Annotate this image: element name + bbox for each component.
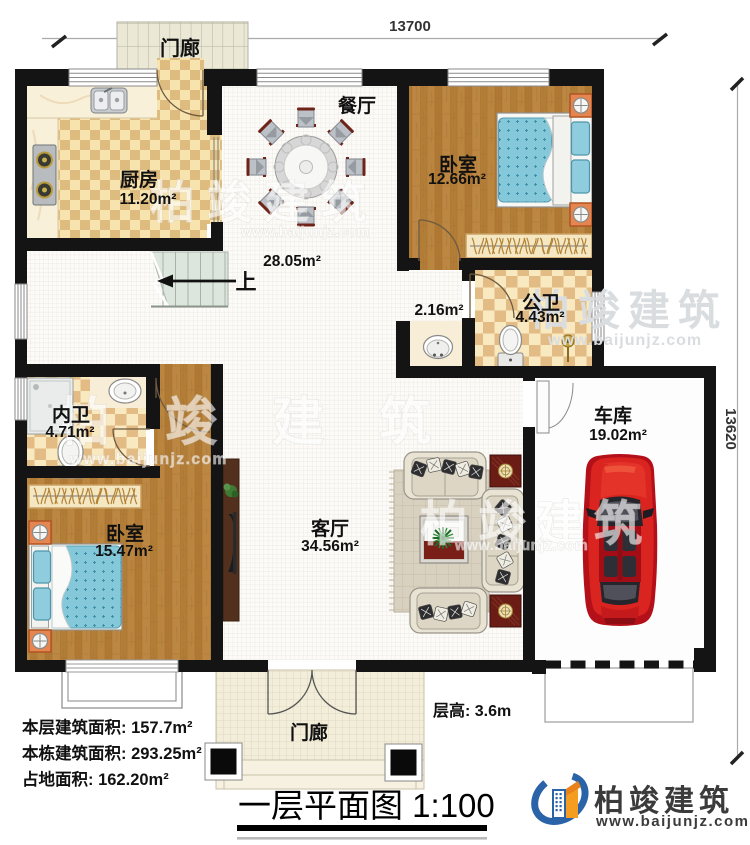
svg-text:4.43m²: 4.43m² — [515, 309, 564, 326]
svg-text:占地面积: 162.20m²: 占地面积: 162.20m² — [22, 769, 169, 789]
svg-text:门廊: 门廊 — [290, 721, 328, 744]
svg-text:餐厅: 餐厅 — [338, 94, 376, 117]
svg-text:卧室: 卧室 — [106, 522, 144, 545]
svg-text:本栋建筑面积: 293.25m²: 本栋建筑面积: 293.25m² — [22, 743, 202, 763]
svg-text:4.71m²: 4.71m² — [45, 424, 94, 441]
svg-text:www.baijunjz.com: www.baijunjz.com — [595, 813, 749, 830]
svg-text:34.56m²: 34.56m² — [301, 538, 359, 555]
svg-text:内卫: 内卫 — [52, 403, 90, 426]
svg-text:层高: 3.6m: 层高: 3.6m — [433, 701, 511, 720]
svg-text:厨房: 厨房 — [120, 168, 158, 191]
svg-text:2.16m²: 2.16m² — [414, 302, 463, 319]
svg-text:www.baijunjz.com: www.baijunjz.com — [547, 332, 702, 349]
svg-text:19.02m²: 19.02m² — [589, 427, 647, 444]
svg-text:本层建筑面积: 157.7m²: 本层建筑面积: 157.7m² — [22, 717, 193, 737]
svg-text:11.20m²: 11.20m² — [120, 191, 177, 208]
svg-text:www.baijunjz.com: www.baijunjz.com — [454, 538, 588, 554]
svg-text:13620: 13620 — [722, 408, 739, 450]
svg-text:13700: 13700 — [389, 18, 431, 35]
svg-text:上: 上 — [236, 271, 257, 294]
svg-text:www.baijunjz.com: www.baijunjz.com — [69, 451, 228, 468]
svg-text:客厅: 客厅 — [311, 517, 349, 540]
svg-text:车库: 车库 — [594, 404, 632, 427]
svg-text:15.47m²: 15.47m² — [95, 543, 153, 560]
svg-text:门廊: 门廊 — [160, 36, 200, 60]
svg-text:www.baijunjz.com: www.baijunjz.com — [240, 223, 370, 239]
svg-text:12.66m²: 12.66m² — [428, 171, 486, 188]
svg-text:柏竣建筑: 柏竣建筑 — [58, 394, 486, 452]
svg-text:一层平面图 1:100: 一层平面图 1:100 — [238, 787, 495, 824]
svg-text:柏竣建筑: 柏竣建筑 — [150, 177, 378, 228]
svg-text:28.05m²: 28.05m² — [263, 253, 321, 270]
